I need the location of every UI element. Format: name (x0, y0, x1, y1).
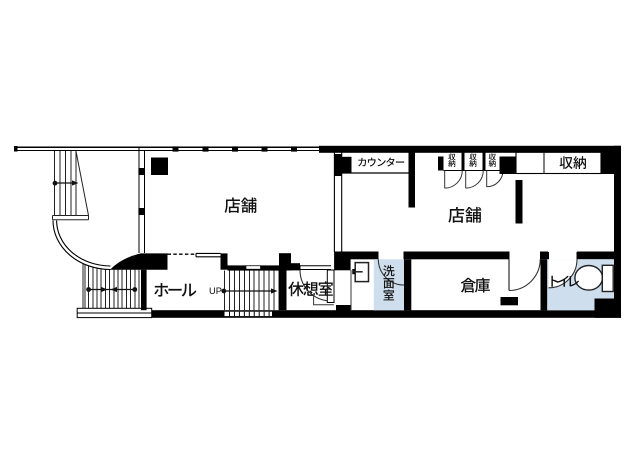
svg-text:UP: UP (209, 286, 222, 296)
